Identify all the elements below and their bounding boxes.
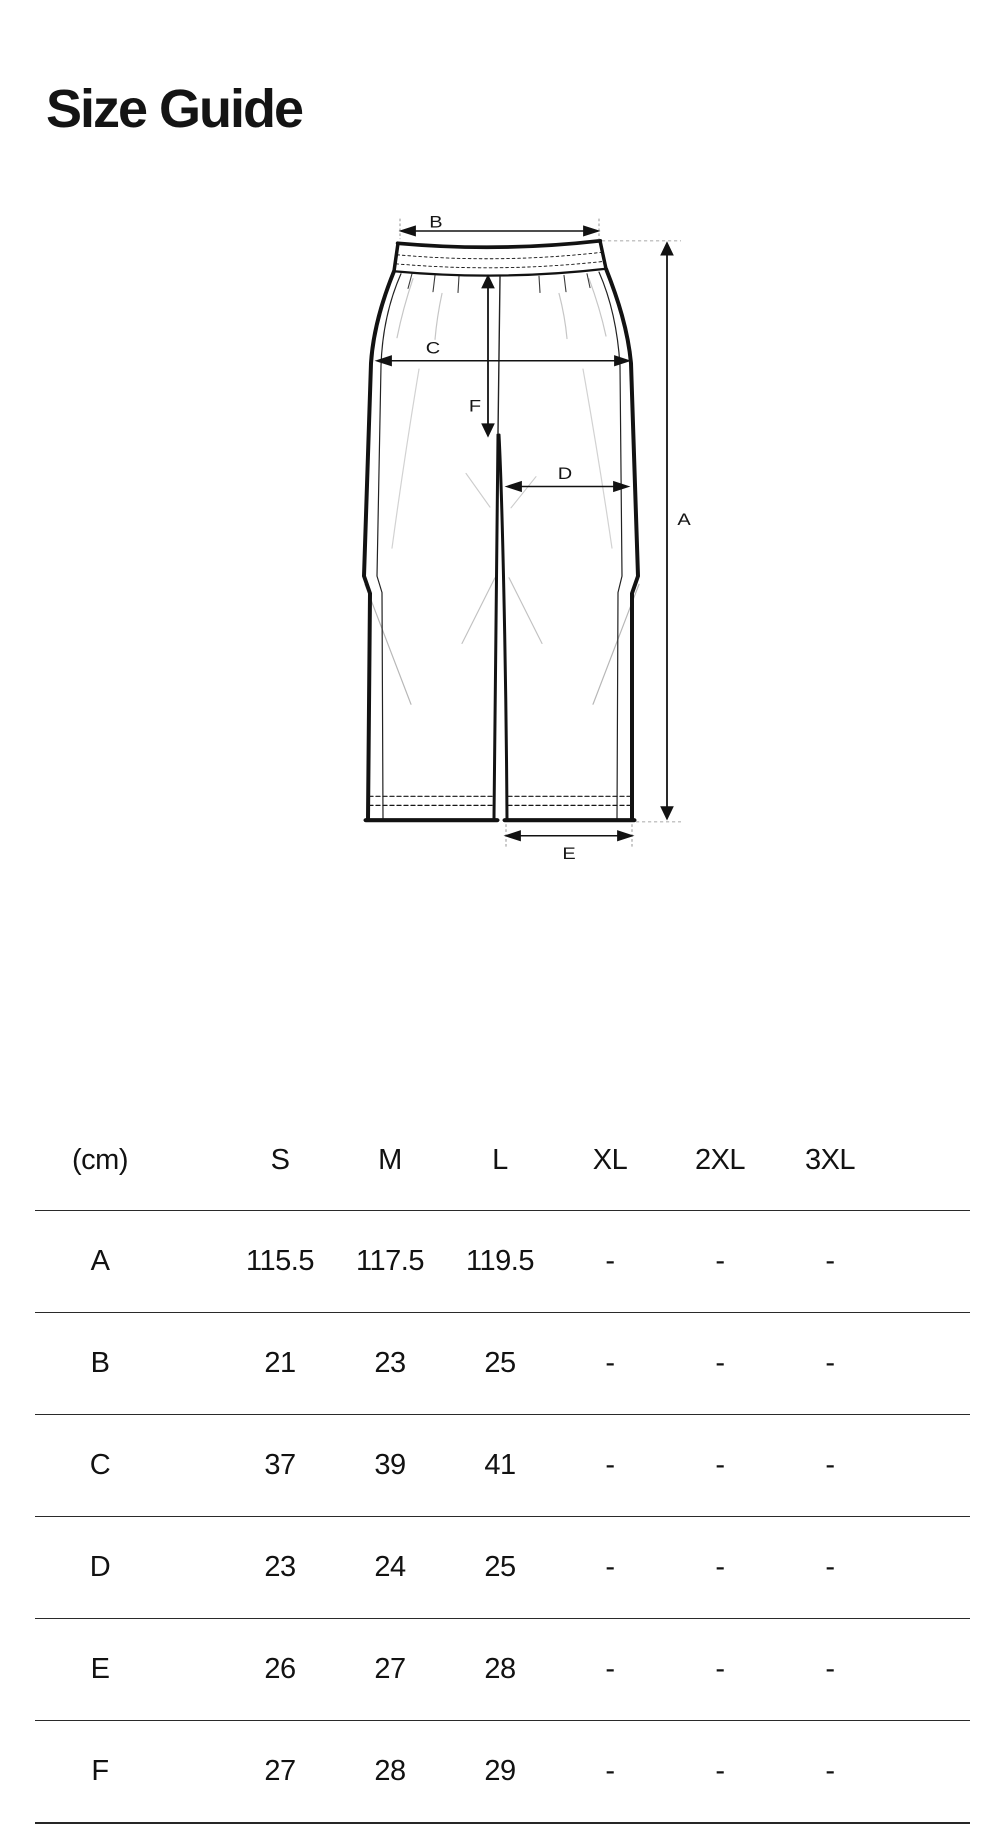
row-label: C xyxy=(35,1449,165,1482)
cell: - xyxy=(775,1245,885,1278)
center-front-seam xyxy=(498,277,500,433)
cell: 23 xyxy=(335,1347,445,1380)
col-header-l: L xyxy=(445,1144,555,1177)
dimension-arrow-a xyxy=(662,243,673,818)
cell: - xyxy=(555,1551,665,1584)
cell: 24 xyxy=(335,1551,445,1584)
size-diagram: B A C D F E xyxy=(280,180,720,1010)
cell: - xyxy=(555,1755,665,1788)
cell: - xyxy=(665,1551,775,1584)
dimension-arrow-e xyxy=(506,831,632,840)
size-row-e: E 26 27 28 - - - xyxy=(35,1618,970,1720)
size-row-a: A 115.5 117.5 119.5 - - - xyxy=(35,1210,970,1312)
cell: 37 xyxy=(225,1449,335,1482)
cell: 26 xyxy=(225,1653,335,1686)
col-header-m: M xyxy=(335,1144,445,1177)
cell: - xyxy=(665,1653,775,1686)
col-header-s: S xyxy=(225,1144,335,1177)
size-row-d: D 23 24 25 - - - xyxy=(35,1516,970,1618)
cell: - xyxy=(665,1755,775,1788)
cell: - xyxy=(555,1245,665,1278)
dimension-labels: B A C D F E xyxy=(426,212,692,862)
dimension-arrow-f xyxy=(483,276,494,435)
label-c: C xyxy=(426,338,440,357)
label-a: A xyxy=(677,510,691,529)
page-title: Size Guide xyxy=(46,78,302,140)
cell: 115.5 xyxy=(225,1245,335,1278)
label-b: B xyxy=(429,212,442,231)
cell: - xyxy=(775,1755,885,1788)
cell: 21 xyxy=(225,1347,335,1380)
cell: 41 xyxy=(445,1449,555,1482)
size-table-header: (cm) S M L XL 2XL 3XL xyxy=(35,1110,970,1210)
cell: 25 xyxy=(445,1347,555,1380)
left-inseam xyxy=(494,435,498,820)
cell: - xyxy=(775,1653,885,1686)
cell: 117.5 xyxy=(335,1245,445,1278)
cell: - xyxy=(775,1449,885,1482)
cell: 39 xyxy=(335,1449,445,1482)
row-label: D xyxy=(35,1551,165,1584)
waistband xyxy=(394,241,606,276)
label-e: E xyxy=(562,844,575,863)
cell: 27 xyxy=(225,1755,335,1788)
cell: - xyxy=(775,1551,885,1584)
row-label: F xyxy=(35,1755,165,1788)
pants-drawing xyxy=(364,241,639,820)
cell: 28 xyxy=(445,1653,555,1686)
size-table: (cm) S M L XL 2XL 3XL A 115.5 117.5 119.… xyxy=(35,1110,970,1824)
col-header-3xl: 3XL xyxy=(775,1144,885,1177)
cell: - xyxy=(665,1245,775,1278)
cell: 119.5 xyxy=(445,1245,555,1278)
waistband-stitch-top xyxy=(397,252,602,258)
right-inseam xyxy=(499,435,507,820)
dimension-arrow-c xyxy=(377,356,629,365)
col-header-xl: XL xyxy=(555,1144,665,1177)
size-row-f: F 27 28 29 - - - xyxy=(35,1720,970,1822)
hem-stitching xyxy=(369,796,631,805)
cell: 28 xyxy=(335,1755,445,1788)
label-d: D xyxy=(558,464,572,483)
cell: 27 xyxy=(335,1653,445,1686)
unit-label: (cm) xyxy=(35,1144,165,1177)
size-row-c: C 37 39 41 - - - xyxy=(35,1414,970,1516)
dimension-lines xyxy=(377,226,673,840)
label-f: F xyxy=(469,396,481,415)
cell: 23 xyxy=(225,1551,335,1584)
cell: 29 xyxy=(445,1755,555,1788)
cell: - xyxy=(775,1347,885,1380)
cell: - xyxy=(555,1449,665,1482)
cell: - xyxy=(665,1347,775,1380)
size-row-b: B 21 23 25 - - - xyxy=(35,1312,970,1414)
waistband-stitch-bottom xyxy=(396,261,604,267)
row-label: B xyxy=(35,1347,165,1380)
cell: - xyxy=(665,1449,775,1482)
row-label: E xyxy=(35,1653,165,1686)
cell: 25 xyxy=(445,1551,555,1584)
dimension-guides xyxy=(400,219,681,849)
cell: - xyxy=(555,1653,665,1686)
cell: - xyxy=(555,1347,665,1380)
col-header-2xl: 2XL xyxy=(665,1144,775,1177)
pants-outline xyxy=(364,269,638,820)
pants-measurement-diagram: B A C D F E xyxy=(280,180,720,1010)
row-label: A xyxy=(35,1245,165,1278)
